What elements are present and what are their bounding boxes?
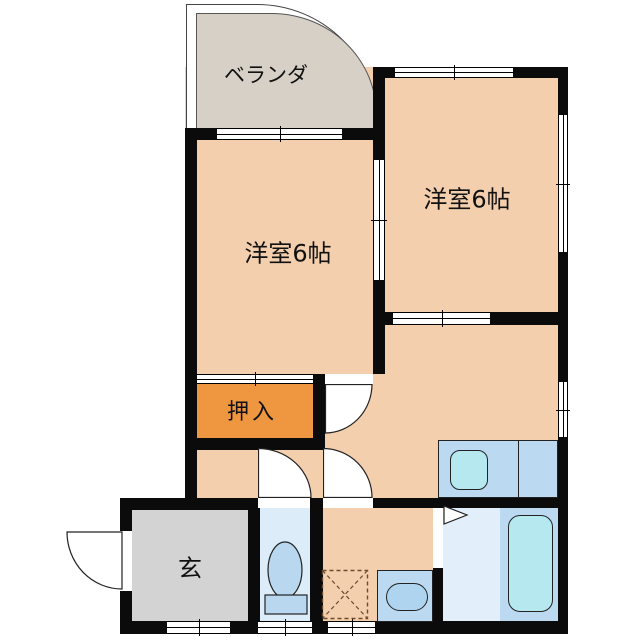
wall xyxy=(120,498,260,510)
folding-bath-door-icon xyxy=(443,505,469,525)
western-room-left-label: 洋室6帖 xyxy=(244,234,331,269)
window xyxy=(217,128,342,140)
kitchen-sink-icon xyxy=(450,450,488,490)
door-swing-bedroom xyxy=(325,384,373,434)
washbasin-icon xyxy=(386,583,428,611)
veranda-label: ベランダ xyxy=(224,59,308,89)
window xyxy=(258,621,312,634)
window xyxy=(558,382,568,437)
bedroom-doorway xyxy=(325,374,373,384)
washroom-doorway xyxy=(323,498,373,508)
western-room-right-label: 洋室6帖 xyxy=(423,180,510,215)
wall xyxy=(433,568,443,623)
bath-doorway xyxy=(433,508,443,568)
entrance-label: 玄 xyxy=(178,549,202,584)
window xyxy=(558,115,568,252)
washing-machine-space-icon xyxy=(321,569,369,620)
sliding-door xyxy=(393,312,490,325)
floor-plan: ベランダ 洋室6帖 洋室6帖 押入 玄 xyxy=(0,0,640,640)
toilet-doorway xyxy=(258,498,310,508)
kitchen-counter-divider xyxy=(518,440,519,498)
closet-label: 押入 xyxy=(227,394,277,426)
closet-sliding-door xyxy=(197,374,313,384)
window xyxy=(395,67,513,78)
sliding-partition xyxy=(373,160,385,280)
entrance-door-swing xyxy=(66,531,124,591)
window xyxy=(167,621,230,634)
wall xyxy=(248,498,260,634)
wall xyxy=(373,498,568,508)
door-swing-toilet xyxy=(258,448,312,498)
door-swing-washroom xyxy=(323,448,373,498)
toilet-icon xyxy=(263,540,309,616)
window xyxy=(328,621,375,634)
bathtub-icon xyxy=(508,515,553,612)
